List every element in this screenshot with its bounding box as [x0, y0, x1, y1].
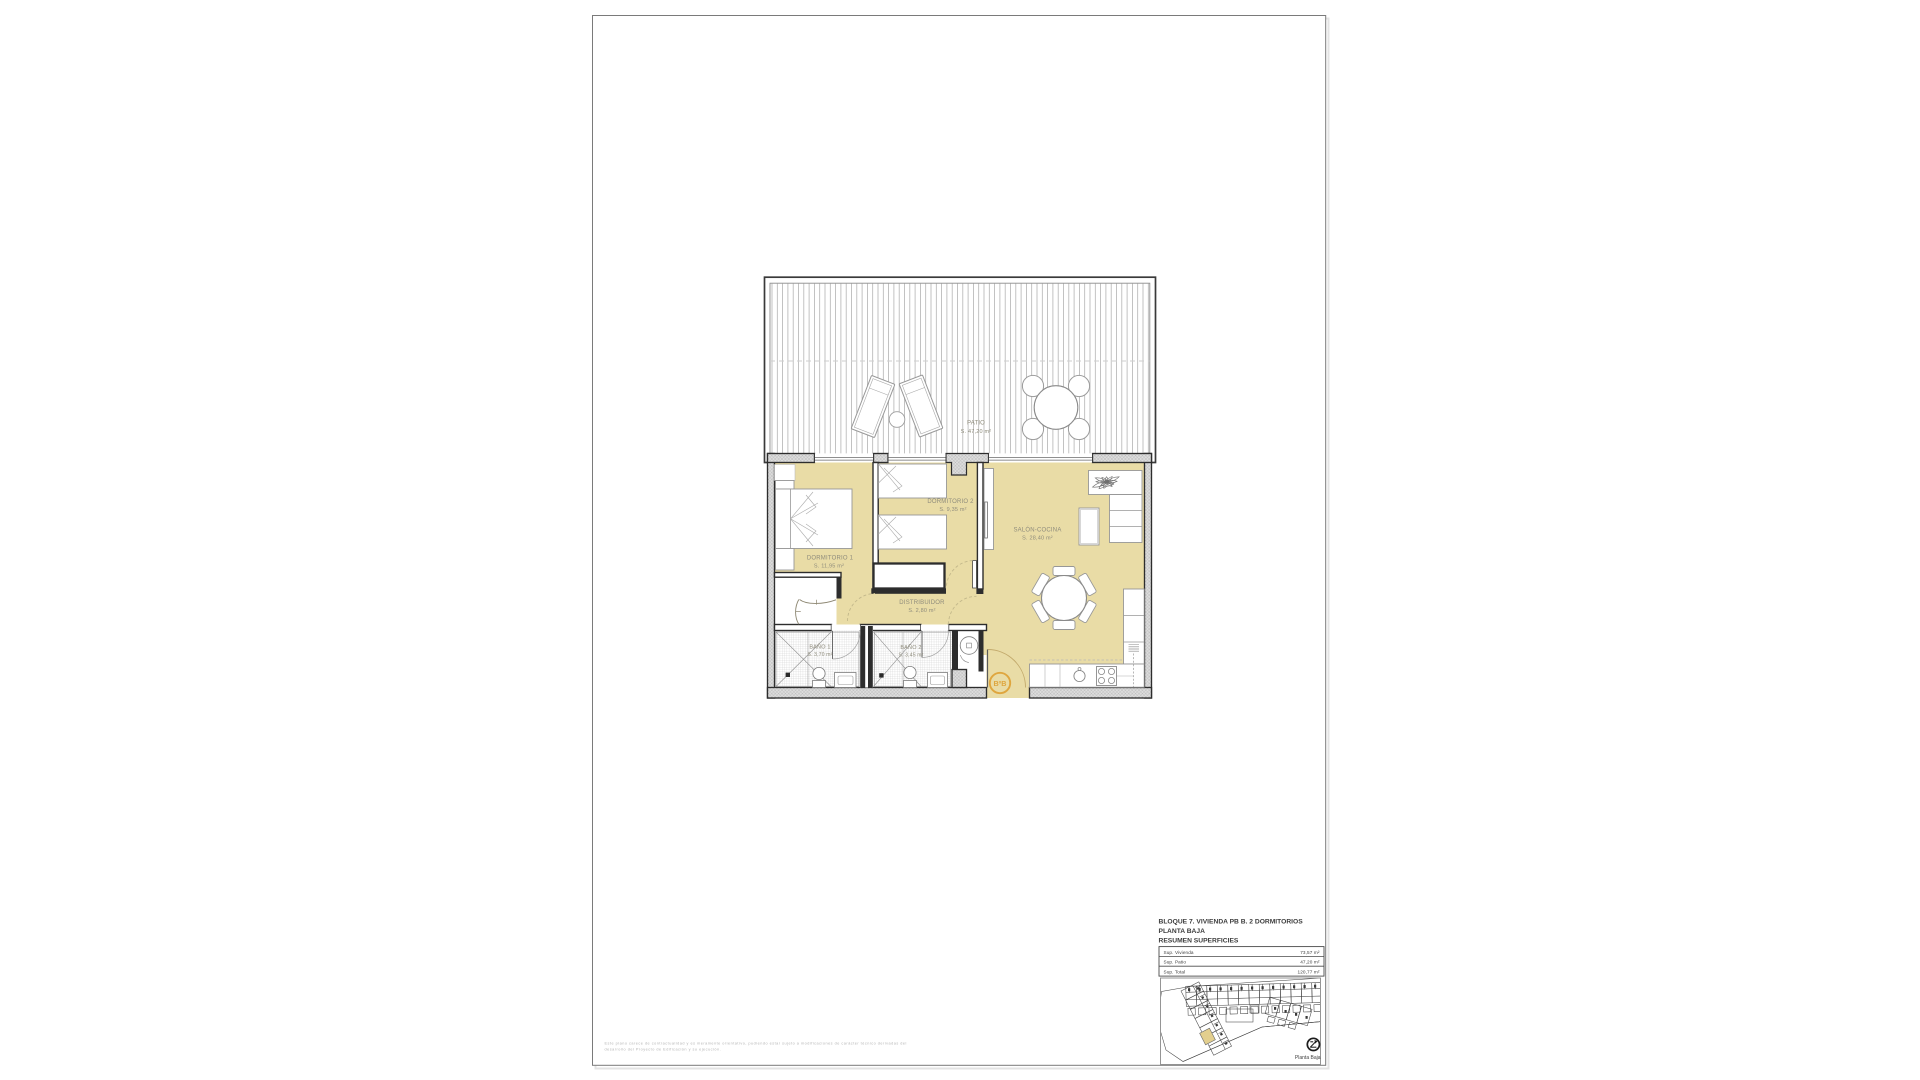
svg-text:Planta Baja: Planta Baja [1295, 1055, 1321, 1061]
svg-text:RESUMEN SUPERFICIES: RESUMEN SUPERFICIES [1159, 938, 1239, 945]
svg-text:BAÑO 2: BAÑO 2 [900, 644, 921, 651]
svg-text:Sup. Total: Sup. Total [1164, 970, 1186, 975]
svg-text:BLOQUE 7. VIVIENDA PB B. 2 DOR: BLOQUE 7. VIVIENDA PB B. 2 DORMITORIOS [1159, 919, 1304, 926]
svg-text:Este plano carece de contractu: Este plano carece de contractualidad y e… [605, 1041, 907, 1045]
svg-text:BºB: BºB [993, 679, 1006, 688]
svg-text:Sup. Patio: Sup. Patio [1164, 960, 1187, 965]
svg-text:desarrollo del Proyecto de Edi: desarrollo del Proyecto de Edificación y… [605, 1048, 722, 1052]
svg-text:BAÑO 1: BAÑO 1 [809, 644, 830, 651]
svg-text:S. 3,70 m²: S. 3,70 m² [807, 652, 832, 658]
svg-text:S. 9,35 m²: S. 9,35 m² [939, 507, 966, 513]
svg-text:73,57 m²: 73,57 m² [1300, 950, 1320, 955]
svg-text:SALÓN-COCINA: SALÓN-COCINA [1013, 527, 1061, 534]
svg-text:120,77 m²: 120,77 m² [1297, 970, 1319, 975]
svg-text:DISTRIBUIDOR: DISTRIBUIDOR [899, 600, 945, 606]
svg-text:DORMITORIO 1: DORMITORIO 1 [807, 556, 854, 562]
svg-text:S. 47,20 m²: S. 47,20 m² [961, 429, 992, 435]
svg-text:S. 3,45 m²: S. 3,45 m² [898, 653, 923, 659]
svg-text:S. 28,40 m²: S. 28,40 m² [1022, 536, 1053, 542]
svg-text:PLANTA BAJA: PLANTA BAJA [1159, 928, 1206, 935]
svg-text:47,20 m²: 47,20 m² [1300, 960, 1320, 965]
svg-text:S. 2,80 m²: S. 2,80 m² [908, 608, 935, 614]
svg-text:PATIO: PATIO [967, 421, 985, 427]
svg-text:S. 11,95 m²: S. 11,95 m² [814, 564, 844, 570]
svg-text:DORMITORIO 2: DORMITORIO 2 [927, 499, 974, 505]
svg-text:Sup. Vivienda: Sup. Vivienda [1164, 950, 1194, 955]
